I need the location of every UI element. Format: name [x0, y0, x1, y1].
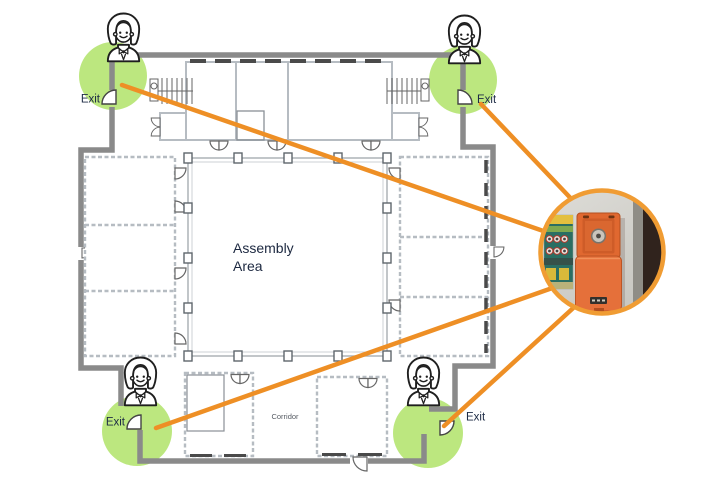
stairs-right-icon [387, 78, 429, 104]
exit-label-top-left: Exit [81, 94, 101, 106]
assembly-columns [184, 153, 391, 361]
floor-plan-canvas: Assembly Area Corridor Exit Exit Exit Ex… [0, 0, 720, 486]
double-door-icon [210, 141, 228, 150]
evacuation-plan-diagram: Assembly Area Corridor Exit Exit Exit Ex… [0, 0, 720, 486]
device-bottom-notch [594, 308, 604, 311]
warden-avatar-icon-top-right [449, 16, 480, 64]
assembly-outline-inner [192, 162, 383, 352]
assembly-outline [188, 158, 387, 356]
bottom-room-b [317, 377, 387, 456]
device-slot-left [583, 216, 589, 219]
device-call-button-center [596, 234, 601, 239]
exit-label-bottom-right: Exit [466, 412, 486, 424]
left-room-block [85, 157, 186, 356]
room-door-icon [175, 333, 186, 344]
vestibule-door-icon [419, 118, 428, 127]
warden-avatar-icon-bottom-right [408, 358, 439, 406]
vestibule-door-icon [151, 118, 160, 127]
room-door-icon [175, 268, 186, 279]
exit-highlight-bottom-left [102, 396, 172, 466]
bottom-wall-door-icon [353, 457, 367, 471]
warden-avatar-icon-top-left [108, 14, 139, 62]
right-wall-door-icon [494, 247, 504, 257]
corridor-label: Corridor [271, 412, 299, 421]
exit-label-bottom-left: Exit [106, 417, 126, 429]
assembly-area-label-line1: Assembly [233, 240, 294, 256]
emergency-call-point-photo [539, 189, 667, 317]
vestibule-door-icon [419, 127, 428, 136]
assembly-area: Assembly Area [184, 153, 391, 361]
warden-avatar-icon-bottom-left [125, 358, 156, 406]
device-slot-right [609, 216, 615, 219]
photo-call-device [576, 213, 626, 311]
vestibule-door-icon [151, 127, 160, 136]
top-vestibule-right [392, 113, 419, 140]
top-vestibule-left [160, 113, 186, 140]
double-door-icon [362, 141, 380, 150]
left-rooms-outline [85, 157, 175, 356]
assembly-area-label-line2: Area [233, 258, 263, 274]
callout-line-top-right [481, 104, 580, 208]
top-room-block [150, 61, 429, 150]
bottom-room-block: Corridor [185, 373, 387, 471]
room-door-icon [175, 168, 186, 179]
